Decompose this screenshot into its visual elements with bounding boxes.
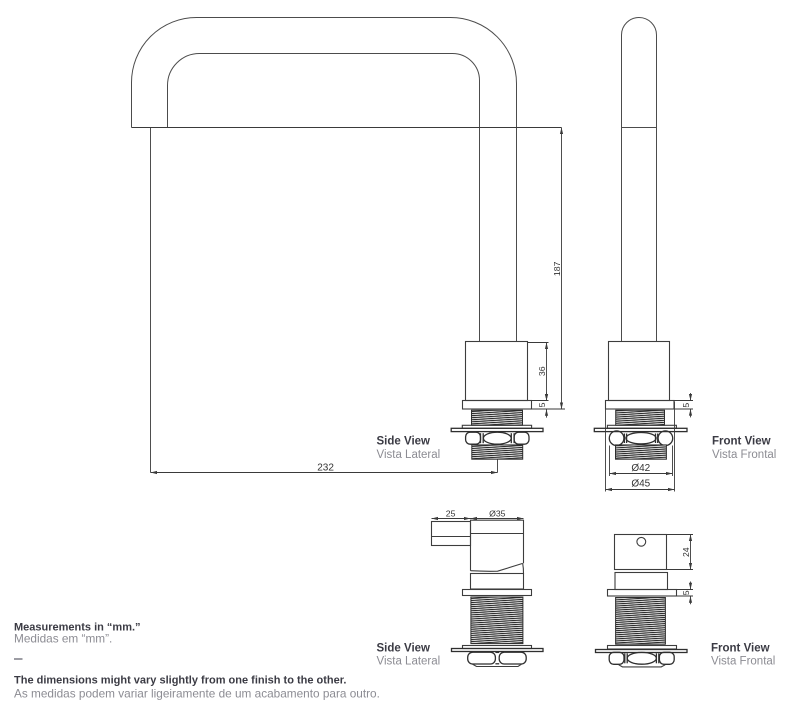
svg-text:Ø35: Ø35 bbox=[489, 509, 506, 519]
svg-text:Ø45: Ø45 bbox=[631, 479, 650, 490]
svg-text:Vista Lateral: Vista Lateral bbox=[377, 655, 441, 667]
svg-text:Vista Frontal: Vista Frontal bbox=[712, 449, 776, 461]
svg-text:Front View: Front View bbox=[711, 642, 770, 654]
svg-text:232: 232 bbox=[317, 462, 334, 473]
svg-text:The dimensions might vary slig: The dimensions might vary slightly from … bbox=[14, 674, 346, 686]
svg-text:36: 36 bbox=[537, 366, 547, 376]
svg-text:25: 25 bbox=[446, 509, 456, 519]
svg-text:As medidas podem variar ligeir: As medidas podem variar ligeiramente de … bbox=[14, 686, 380, 700]
svg-text:24: 24 bbox=[681, 547, 691, 557]
svg-text:Ø42: Ø42 bbox=[631, 463, 650, 474]
svg-text:187: 187 bbox=[552, 261, 562, 276]
svg-text:5: 5 bbox=[537, 402, 547, 407]
svg-text:Vista Lateral: Vista Lateral bbox=[377, 449, 441, 461]
svg-text:Side View: Side View bbox=[377, 436, 431, 448]
svg-text:Side View: Side View bbox=[377, 642, 431, 654]
svg-text:Front View: Front View bbox=[712, 436, 771, 448]
svg-text:5: 5 bbox=[681, 590, 691, 595]
svg-text:Medidas em “mm”.: Medidas em “mm”. bbox=[14, 632, 112, 646]
svg-text:Vista Frontal: Vista Frontal bbox=[711, 655, 775, 667]
svg-text:5: 5 bbox=[681, 403, 691, 408]
